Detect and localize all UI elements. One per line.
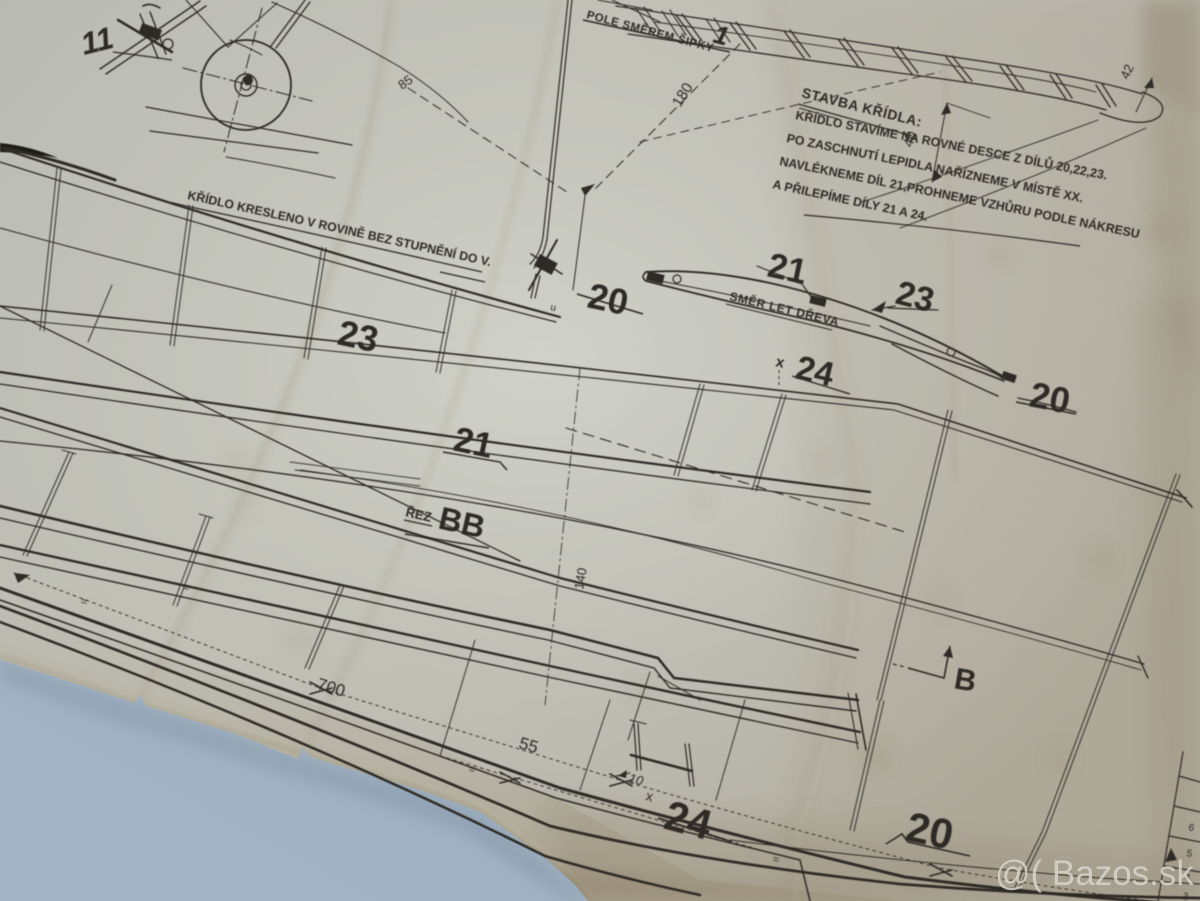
svg-text:20: 20 bbox=[902, 803, 957, 859]
svg-text:23: 23 bbox=[334, 312, 382, 360]
svg-text:20: 20 bbox=[1026, 374, 1073, 422]
svg-text:21: 21 bbox=[450, 420, 496, 466]
svg-text:21: 21 bbox=[764, 246, 810, 292]
svg-text:@( Bazos.sk: @( Bazos.sk bbox=[995, 854, 1194, 893]
